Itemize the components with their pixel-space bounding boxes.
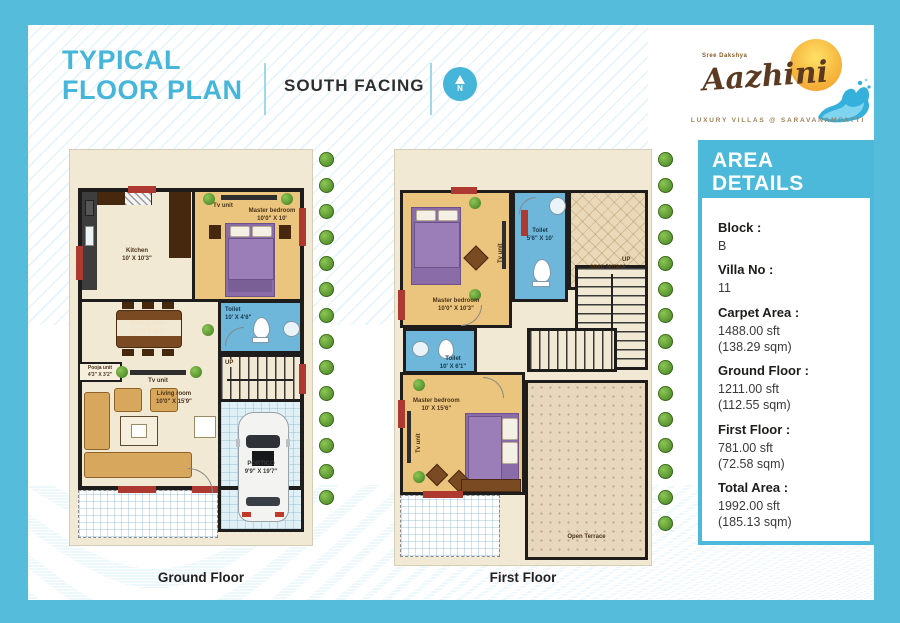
gf-portico-name: PORTICO (221, 460, 301, 468)
ff-master-bedroom-bottom-room: Master bedroom 10' X 15'6" Tv unit (400, 372, 525, 495)
kitchen-sink (85, 226, 94, 246)
ff-open-terrace-top-label: open terrace (571, 263, 645, 271)
logo-tagline-top: Sree Dakshya (702, 53, 747, 59)
plant-icon (658, 438, 673, 453)
gf-portico: PORTICO 9'9" X 19'7" (218, 402, 304, 532)
plant-icon (658, 386, 673, 401)
plant-pot (413, 471, 425, 483)
plant-icon (319, 386, 334, 401)
plant-icon (658, 516, 673, 531)
gf-dining-size: 10'0" X 10'9" (117, 328, 181, 336)
living-tv-unit (130, 370, 186, 375)
gf-dining-name: Dining room (117, 320, 181, 328)
plant-pot (203, 193, 215, 205)
ff-master-bottom-name: Master bedroom (413, 397, 460, 405)
dining-chair (162, 349, 174, 356)
ff-master-top-size: 10'0" X 10'3" (403, 305, 509, 313)
door-swing-arc (225, 327, 244, 346)
car-tail-light (242, 512, 251, 517)
accent-chair (463, 245, 488, 270)
gf-staircase: UP (218, 354, 304, 402)
side-stool (194, 416, 216, 438)
ff-toilet-top-label: Toilet 5'6" X 10' (515, 227, 565, 243)
plant-icon (658, 178, 673, 193)
brochure-page: TYPICAL FLOOR PLAN SOUTH FACING N Sree D… (0, 0, 900, 623)
carpet-area-value: 1488.00 sft (718, 323, 862, 339)
plant-icon (658, 256, 673, 271)
plant-icon (658, 230, 673, 245)
bedspread (228, 238, 274, 280)
plant-icon (658, 308, 673, 323)
ff-balcony (400, 495, 500, 557)
ff-toilet-top-size: 5'6" X 10' (515, 235, 565, 243)
plant-icon (658, 490, 673, 505)
area-detail-total-area: Total Area : 1992.00 sft (185.13 sqm) (718, 480, 862, 531)
kitchen-size: 10' X 10'3" (81, 255, 193, 263)
plant-icon (319, 412, 334, 427)
header-divider-2 (430, 63, 432, 115)
pillow (502, 418, 518, 440)
plant-icon (319, 334, 334, 349)
sofa-side (84, 392, 110, 450)
total-area-label: Total Area : (718, 480, 862, 495)
area-detail-villa-no: Villa No : 11 (718, 262, 862, 296)
plant-pot (190, 366, 202, 378)
gf-caption: Ground Floor (80, 570, 322, 585)
compass-north-icon: N (443, 67, 477, 101)
page-title-line2: FLOOR PLAN (62, 75, 243, 105)
dining-chair (142, 349, 154, 356)
gf-toilet-size: 10' X 4'6" (225, 314, 251, 322)
bed-footer (228, 280, 272, 292)
toilet-wc (533, 259, 551, 283)
plant-icon (658, 204, 673, 219)
gf-bed (225, 223, 275, 297)
door-swing-arc (483, 377, 504, 398)
coffee-table (120, 416, 158, 446)
plant-pot (116, 366, 128, 378)
wall-accent (299, 364, 306, 394)
plant-icon (319, 282, 334, 297)
gf-dining-area: Dining room 10'0" X 10'9" (78, 300, 218, 362)
ff-bottom-tv-unit (407, 411, 411, 463)
toilet-basin (549, 197, 566, 215)
plant-icon (319, 490, 334, 505)
carpet-area-value-sqm: (138.29 sqm) (718, 339, 862, 355)
ff-toilet-top-name: Toilet (515, 227, 565, 235)
first-floor-value: 781.00 sft (718, 440, 862, 456)
ff-toilet-mid-room: Toilet 10' X 6'1" (403, 328, 477, 374)
wardrobe (461, 479, 521, 492)
gf-yard (78, 490, 218, 538)
page-title: TYPICAL FLOOR PLAN (62, 45, 243, 105)
wall-accent (398, 400, 405, 428)
armchair (114, 388, 142, 412)
total-area-value: 1992.00 sft (718, 498, 862, 514)
plant-icon (319, 308, 334, 323)
accent-chair (426, 464, 449, 487)
ff-master-top-name: Master bedroom (403, 297, 509, 305)
car-mirror (286, 439, 290, 447)
wall-accent (128, 186, 156, 193)
ff-bottom-tv-label: Tv unit (415, 433, 423, 453)
toilet-basin (283, 321, 300, 337)
coffee-table-top (131, 424, 147, 438)
block-value: B (718, 238, 862, 254)
ground-floor-value: 1211.00 sft (718, 381, 862, 397)
ff-top-tv-label: Tv unit (497, 243, 505, 263)
side-table (209, 225, 221, 239)
content-canvas: TYPICAL FLOOR PLAN SOUTH FACING N Sree D… (28, 25, 874, 600)
gf-portico-size: 9'9" X 19'7" (221, 468, 301, 476)
side-table (279, 225, 291, 239)
pillow (416, 210, 436, 221)
plant-icon (319, 152, 334, 167)
gf-living-size: 10'0" X 15'9" (156, 398, 192, 406)
pillow (252, 226, 272, 237)
plant-pot (202, 324, 214, 336)
ff-open-terrace-bottom-label: Open Terrace (528, 533, 645, 541)
ff-toilet-mid-size: 10' X 6'1" (434, 363, 472, 371)
gf-living-label: Living room 10'0" X 15'9" (156, 390, 192, 406)
kitchen-platform (125, 192, 151, 205)
wall-accent (299, 208, 306, 246)
toilet-wc-tank (532, 281, 550, 287)
area-details-heading: AREA DETAILS (698, 140, 874, 203)
pillow (502, 442, 518, 464)
car-tail-light (275, 512, 284, 517)
bedspread (414, 222, 460, 268)
gf-toilet-name: Toilet (225, 306, 251, 314)
gf-master-bedroom-size: 10'0" X 10' (245, 215, 299, 223)
total-area-value-sqm: (185.13 sqm) (718, 514, 862, 530)
dining-chair (162, 302, 174, 309)
ff-open-terrace-bottom: Open Terrace (525, 380, 648, 560)
kitchen-name: Kitchen (81, 247, 193, 255)
plant-icon (658, 360, 673, 375)
ground-floor-value-sqm: (112.55 sqm) (718, 397, 862, 413)
ground-floor-label: Ground Floor : (718, 363, 862, 378)
gf-portico-label: PORTICO 9'9" X 19'7" (221, 460, 301, 476)
area-details-panel: AREA DETAILS Block : B Villa No : 11 Car… (698, 140, 874, 545)
plant-pot (281, 193, 293, 205)
plant-icon (658, 334, 673, 349)
first-floor-label: First Floor : (718, 422, 862, 437)
plant-icon (658, 282, 673, 297)
plant-icon (319, 464, 334, 479)
carpet-area-label: Carpet Area : (718, 305, 862, 320)
dining-chair (142, 302, 154, 309)
plant-pot (413, 379, 425, 391)
kitchen-counter-left (82, 192, 97, 290)
plant-icon (319, 438, 334, 453)
compass-n-letter: N (457, 85, 463, 93)
ff-master-bedroom-top-room: Tv unit Master bedroom 10'0" X 10'3" (400, 190, 512, 328)
dining-chair (122, 349, 134, 356)
toilet-wc (253, 317, 270, 339)
sofa-long (84, 452, 192, 478)
ff-master-bottom-label: Master bedroom 10' X 15'6" (413, 397, 460, 413)
compass-arrow-icon (455, 75, 465, 84)
plant-icon (319, 256, 334, 271)
first-floor-plan: Tv unit Master bedroom 10'0" X 10'3" Toi… (395, 150, 680, 590)
header-divider (264, 63, 266, 115)
ground-floor-plan: Kitchen 10' X 10'3" Tv unit Master bedro… (70, 150, 338, 590)
block-label: Block : (718, 220, 862, 235)
pillow (438, 210, 458, 221)
ff-toilet-top-room: Toilet 5'6" X 10' (512, 190, 568, 302)
villa-no-label: Villa No : (718, 262, 862, 277)
villa-no-value: 11 (718, 280, 862, 296)
area-detail-ground-floor: Ground Floor : 1211.00 sft (112.55 sqm) (718, 363, 862, 414)
area-detail-carpet-area: Carpet Area : 1488.00 sft (138.29 sqm) (718, 305, 862, 356)
gf-toilet-label: Toilet 10' X 4'6" (225, 306, 251, 322)
facing-label: SOUTH FACING (284, 76, 424, 96)
plant-icon (658, 464, 673, 479)
bedspread (468, 416, 502, 488)
kitchen-label: Kitchen 10' X 10'3" (81, 247, 193, 263)
gf-master-bedroom-room: Tv unit Master bedroom 10'0" X 10' (192, 188, 304, 302)
ff-toilet-mid-name: Toilet (434, 355, 472, 363)
car-mirror (236, 439, 240, 447)
car-windshield (246, 435, 280, 448)
dining-chair (122, 302, 134, 309)
gf-pooja-name: Pooja unit (80, 365, 120, 372)
brand-logo: Sree Dakshya Aazhini LUXURY VILLAS @ SAR… (678, 33, 874, 133)
wall-accent (118, 486, 156, 493)
ff-master-bottom-size: 10' X 15'6" (413, 405, 460, 413)
living-tv-label: Tv unit (126, 377, 190, 385)
first-floor-value-sqm: (72.58 sqm) (718, 456, 862, 472)
area-details-heading-line1: AREA (712, 150, 874, 173)
plant-icon (319, 178, 334, 193)
gf-master-bedroom-name: Master bedroom (245, 207, 299, 215)
gf-plant-row (316, 152, 336, 505)
wall-accent (423, 491, 463, 498)
ff-stairs-flight (527, 328, 617, 372)
plant-icon (658, 152, 673, 167)
ff-toilet-mid-label: Toilet 10' X 6'1" (434, 355, 472, 371)
kitchen-stove (85, 200, 94, 216)
area-details-heading-line2: DETAILS (712, 173, 874, 196)
plant-icon (658, 412, 673, 427)
stairs-direction-line (227, 379, 293, 381)
gf-pooja-size: 4'3" X 3'2" (80, 372, 120, 379)
gf-bedroom-tv-unit (221, 195, 277, 200)
gf-stairs-up-label: UP (224, 359, 234, 367)
gf-dining-label: Dining room 10'0" X 10'9" (117, 320, 181, 336)
plant-pot (469, 197, 481, 209)
area-details-body: Block : B Villa No : 11 Carpet Area : 14… (702, 198, 870, 541)
gf-kitchen-room: Kitchen 10' X 10'3" (78, 188, 196, 302)
logo-tagline-bottom: LUXURY VILLAS @ SARAVANAMPATTI (688, 117, 868, 124)
area-detail-block: Block : B (718, 220, 862, 254)
gf-master-bedroom-label: Master bedroom 10'0" X 10' (245, 207, 299, 223)
ff-bed-top (411, 207, 461, 285)
wall-accent (451, 187, 477, 194)
area-detail-first-floor: First Floor : 781.00 sft (72.58 sqm) (718, 422, 862, 473)
page-title-line1: TYPICAL (62, 45, 243, 75)
plant-icon (319, 360, 334, 375)
ff-bed-bottom (465, 413, 519, 489)
toilet-basin (412, 341, 429, 357)
gf-toilet-room: Toilet 10' X 4'6" (218, 300, 304, 354)
plant-icon (319, 204, 334, 219)
ff-plant-row (655, 152, 675, 531)
ff-stairs-up-label: UP (622, 256, 630, 264)
plant-icon (319, 230, 334, 245)
car-rear-window (246, 497, 280, 506)
toilet-wc-tank (252, 337, 269, 343)
dining-table: Dining room 10'0" X 10'9" (116, 310, 182, 348)
pillow (230, 226, 250, 237)
ff-caption: First Floor (395, 570, 651, 585)
gf-living-name: Living room (156, 390, 192, 398)
ff-master-top-label: Master bedroom 10'0" X 10'3" (403, 297, 509, 313)
gf-pooja-label: Pooja unit 4'3" X 3'2" (80, 365, 120, 379)
